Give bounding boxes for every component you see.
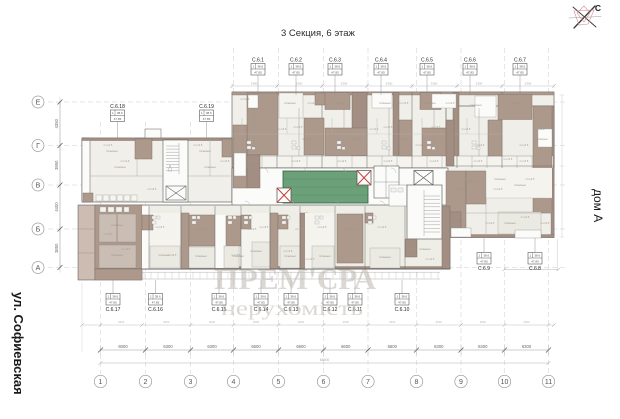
- svg-text:47.85: 47.85: [152, 300, 160, 304]
- svg-text:6300: 6300: [434, 344, 444, 349]
- svg-text:С.6.18: С.6.18: [110, 104, 125, 110]
- svg-text:Спальня: Спальня: [514, 183, 526, 187]
- svg-text:4500: 4500: [343, 320, 350, 324]
- svg-text:пл.12.5: пл.12.5: [122, 247, 131, 251]
- svg-text:пл.12.5: пл.12.5: [346, 249, 355, 253]
- svg-text:пл.12.5: пл.12.5: [104, 143, 113, 147]
- svg-text:4500: 4500: [436, 320, 443, 324]
- svg-text:3300: 3300: [251, 82, 258, 86]
- svg-text:пл.12.5: пл.12.5: [370, 127, 379, 131]
- svg-text:дом А: дом А: [591, 189, 605, 222]
- svg-text:Спальня: Спальня: [352, 137, 364, 141]
- svg-text:В: В: [36, 183, 41, 190]
- svg-text:пл.12.5: пл.12.5: [476, 143, 485, 147]
- svg-text:4500: 4500: [523, 320, 530, 324]
- svg-text:3300: 3300: [341, 82, 348, 86]
- svg-text:Спальня: Спальня: [114, 165, 126, 169]
- svg-text:Спальня: Спальня: [195, 254, 207, 258]
- svg-text:пл.12.5: пл.12.5: [258, 143, 267, 147]
- svg-text:Спальня: Спальня: [111, 223, 123, 227]
- svg-text:3850: 3850: [54, 243, 59, 253]
- svg-text:47.85: 47.85: [109, 300, 117, 304]
- svg-text:пл.12.5: пл.12.5: [284, 249, 293, 253]
- svg-text:Спальня: Спальня: [302, 137, 314, 141]
- svg-text:6600: 6600: [296, 344, 306, 349]
- svg-text:С.6.4: С.6.4: [375, 58, 387, 64]
- svg-text:пл.12.5: пл.12.5: [536, 127, 545, 131]
- svg-text:Спальня: Спальня: [419, 247, 431, 251]
- svg-text:пл.12.5: пл.12.5: [462, 127, 471, 131]
- svg-text:пл.12.5: пл.12.5: [520, 159, 529, 163]
- svg-text:С.6.1: С.6.1: [252, 58, 264, 64]
- svg-text:4400: 4400: [54, 202, 59, 212]
- svg-text:пл.12.5: пл.12.5: [490, 125, 499, 129]
- svg-text:2: 2: [144, 379, 148, 386]
- svg-text:6600: 6600: [341, 344, 351, 349]
- svg-text:пл.12.5: пл.12.5: [168, 253, 177, 257]
- svg-text:пл.12.5: пл.12.5: [241, 97, 250, 101]
- svg-text:47.85: 47.85: [423, 70, 431, 74]
- svg-text:пл.12.5: пл.12.5: [338, 159, 347, 163]
- svg-text:Спальня: Спальня: [284, 254, 296, 258]
- svg-text:пл.12.5: пл.12.5: [541, 221, 550, 225]
- svg-text:Е: Е: [36, 100, 41, 107]
- svg-text:Спальня: Спальня: [454, 187, 466, 191]
- svg-text:ПРЕМ'ЄРА: ПРЕМ'ЄРА: [214, 263, 376, 296]
- svg-text:Спальня: Спальня: [204, 165, 216, 169]
- svg-text:Спальня: Спальня: [319, 254, 331, 258]
- svg-text:Спальня: Спальня: [379, 255, 391, 259]
- svg-text:нерухомість: нерухомість: [221, 298, 363, 320]
- svg-text:пл.12.5: пл.12.5: [494, 187, 503, 191]
- svg-text:47.85: 47.85: [531, 259, 539, 263]
- svg-text:Спальня: Спальня: [250, 249, 262, 253]
- svg-text:пл.12.5: пл.12.5: [400, 101, 409, 105]
- svg-text:47.85: 47.85: [480, 259, 488, 263]
- svg-text:38.6: 38.6: [117, 111, 123, 115]
- svg-text:Спальня: Спальня: [504, 221, 516, 225]
- svg-text:Спальня: Спальня: [106, 149, 118, 153]
- svg-text:пл.12.5: пл.12.5: [260, 225, 269, 229]
- svg-text:пл.12.5: пл.12.5: [194, 143, 203, 147]
- svg-text:пл.12.5: пл.12.5: [278, 127, 287, 131]
- svg-text:Спальня: Спальня: [494, 177, 506, 181]
- svg-text:47.85: 47.85: [331, 70, 339, 74]
- svg-text:6000: 6000: [118, 344, 128, 349]
- svg-text:38.6: 38.6: [469, 65, 475, 69]
- svg-text:38.6: 38.6: [257, 65, 263, 69]
- svg-text:пл.12.5: пл.12.5: [378, 225, 387, 229]
- svg-text:4500: 4500: [298, 320, 305, 324]
- svg-text:47.85: 47.85: [377, 70, 385, 74]
- svg-text:пл.12.5: пл.12.5: [318, 225, 327, 229]
- svg-text:Спальня: Спальня: [396, 137, 408, 141]
- svg-text:А: А: [36, 265, 41, 272]
- svg-text:С.6.9: С.6.9: [478, 266, 490, 272]
- svg-text:64600: 64600: [320, 358, 330, 362]
- svg-text:пл.12.5: пл.12.5: [306, 257, 315, 261]
- svg-text:пл.12.5: пл.12.5: [328, 101, 337, 105]
- svg-text:3950: 3950: [54, 160, 59, 170]
- svg-text:10: 10: [501, 379, 509, 386]
- svg-text:5: 5: [277, 379, 281, 386]
- svg-text:4500: 4500: [118, 320, 125, 324]
- svg-text:Спальня: Спальня: [111, 253, 123, 257]
- svg-text:пл.12.5: пл.12.5: [504, 157, 513, 161]
- svg-text:3300: 3300: [476, 82, 483, 86]
- svg-text:47.85: 47.85: [254, 70, 262, 74]
- svg-text:С.6.16: С.6.16: [148, 307, 163, 313]
- svg-text:пл.12.5: пл.12.5: [456, 215, 465, 219]
- svg-text:пл.12.5: пл.12.5: [384, 125, 393, 129]
- svg-text:38.6: 38.6: [401, 295, 407, 299]
- svg-text:47.85: 47.85: [203, 117, 211, 121]
- svg-text:Б: Б: [36, 227, 41, 234]
- svg-text:Спальня: Спальня: [536, 137, 548, 141]
- svg-text:С.6.8: С.6.8: [529, 266, 541, 272]
- svg-text:пл.12.5: пл.12.5: [121, 159, 130, 163]
- svg-text:6: 6: [322, 379, 326, 386]
- svg-text:пл.12.5: пл.12.5: [461, 177, 470, 181]
- svg-text:Спальня: Спальня: [510, 101, 522, 105]
- svg-text:пл.12.5: пл.12.5: [474, 159, 483, 163]
- svg-text:47.85: 47.85: [516, 70, 524, 74]
- svg-text:пл.12.5: пл.12.5: [430, 159, 439, 163]
- svg-text:Спальня: Спальня: [424, 101, 436, 105]
- svg-text:пл.12.5: пл.12.5: [296, 227, 305, 231]
- svg-text:38.6: 38.6: [483, 254, 489, 258]
- svg-text:пл.12.5: пл.12.5: [308, 101, 317, 105]
- svg-text:38.6: 38.6: [334, 65, 340, 69]
- svg-text:Спальня: Спальня: [246, 107, 258, 111]
- svg-text:3300: 3300: [525, 82, 532, 86]
- svg-text:пл.12.5: пл.12.5: [408, 247, 417, 251]
- svg-text:6300: 6300: [478, 344, 488, 349]
- svg-text:Спальня: Спальня: [470, 103, 482, 107]
- svg-text:1: 1: [99, 379, 103, 386]
- svg-text:С.6.19: С.6.19: [199, 104, 214, 110]
- svg-text:38.6: 38.6: [380, 65, 386, 69]
- svg-text:пл.12.5: пл.12.5: [248, 159, 257, 163]
- svg-text:47.85: 47.85: [114, 117, 122, 121]
- svg-text:4500: 4500: [253, 320, 260, 324]
- svg-text:4350: 4350: [54, 118, 59, 128]
- svg-text:Спальня: Спальня: [379, 101, 391, 105]
- svg-text:С: С: [595, 3, 601, 13]
- svg-text:С.6.5: С.6.5: [421, 58, 433, 64]
- svg-text:С.6.2: С.6.2: [290, 58, 302, 64]
- svg-text:пл.12.5: пл.12.5: [248, 227, 257, 231]
- svg-text:3300: 3300: [386, 82, 393, 86]
- svg-text:11: 11: [545, 379, 552, 386]
- svg-text:пл.12.5: пл.12.5: [426, 257, 435, 261]
- svg-text:пл.12.5: пл.12.5: [148, 187, 157, 191]
- svg-text:Спальня: Спальня: [442, 137, 454, 141]
- svg-text:пл.12.5: пл.12.5: [520, 143, 529, 147]
- svg-text:9: 9: [459, 379, 463, 386]
- svg-text:6300: 6300: [163, 344, 173, 349]
- svg-text:47.85: 47.85: [466, 70, 474, 74]
- svg-text:Спальня: Спальня: [344, 227, 356, 231]
- svg-text:пл.12.5: пл.12.5: [104, 232, 113, 236]
- svg-text:ул. Софиевская: ул. Софиевская: [11, 292, 26, 395]
- svg-text:пл.12.5: пл.12.5: [232, 253, 241, 257]
- svg-text:3300: 3300: [431, 82, 438, 86]
- svg-text:6600: 6600: [251, 344, 261, 349]
- svg-text:Спальня: Спальня: [284, 101, 296, 105]
- svg-text:пл.12.5: пл.12.5: [294, 125, 303, 129]
- svg-text:3300: 3300: [296, 82, 303, 86]
- svg-text:пл.12.5: пл.12.5: [156, 225, 165, 229]
- svg-text:пл.12.5: пл.12.5: [384, 159, 393, 163]
- svg-text:пл.12.5: пл.12.5: [526, 177, 535, 181]
- svg-text:4500: 4500: [163, 320, 170, 324]
- svg-text:пл.12.5: пл.12.5: [204, 225, 213, 229]
- svg-text:пл.12.5: пл.12.5: [486, 221, 495, 225]
- svg-text:С.6.6: С.6.6: [464, 58, 476, 64]
- svg-text:38.6: 38.6: [112, 295, 118, 299]
- svg-text:3 Секция, 6 этаж: 3 Секция, 6 этаж: [281, 28, 355, 39]
- svg-text:Г: Г: [36, 143, 40, 150]
- svg-text:4500: 4500: [209, 320, 216, 324]
- svg-text:38.6: 38.6: [206, 111, 212, 115]
- svg-text:8: 8: [415, 379, 419, 386]
- svg-text:4: 4: [232, 379, 236, 386]
- svg-text:6300: 6300: [207, 344, 217, 349]
- svg-text:38.6: 38.6: [534, 254, 540, 258]
- svg-text:пл.12.5: пл.12.5: [446, 101, 455, 105]
- svg-text:С.6.10: С.6.10: [395, 307, 410, 313]
- svg-text:47.85: 47.85: [398, 300, 406, 304]
- svg-text:С.6.3: С.6.3: [329, 58, 341, 64]
- svg-text:4500: 4500: [480, 320, 487, 324]
- svg-text:7: 7: [366, 379, 370, 386]
- svg-text:47.85: 47.85: [292, 70, 300, 74]
- svg-text:38.6: 38.6: [155, 295, 161, 299]
- svg-text:6300: 6300: [522, 344, 532, 349]
- svg-text:38.6: 38.6: [426, 65, 432, 69]
- svg-text:С.6.17: С.6.17: [106, 307, 121, 313]
- svg-text:пл.12.5: пл.12.5: [521, 215, 530, 219]
- svg-text:С.6.7: С.6.7: [514, 58, 526, 64]
- svg-text:пл.12.5: пл.12.5: [416, 143, 425, 147]
- svg-text:6600: 6600: [388, 344, 398, 349]
- svg-text:4500: 4500: [389, 320, 396, 324]
- svg-text:пл.12.5: пл.12.5: [292, 159, 301, 163]
- svg-text:пл.12.5: пл.12.5: [221, 159, 230, 163]
- svg-text:38.6: 38.6: [295, 65, 301, 69]
- svg-text:Спальня: Спальня: [199, 149, 211, 153]
- svg-text:пл.12.5: пл.12.5: [432, 125, 441, 129]
- svg-text:3: 3: [189, 379, 193, 386]
- svg-text:38.6: 38.6: [519, 65, 525, 69]
- svg-text:пл.12.5: пл.12.5: [336, 143, 345, 147]
